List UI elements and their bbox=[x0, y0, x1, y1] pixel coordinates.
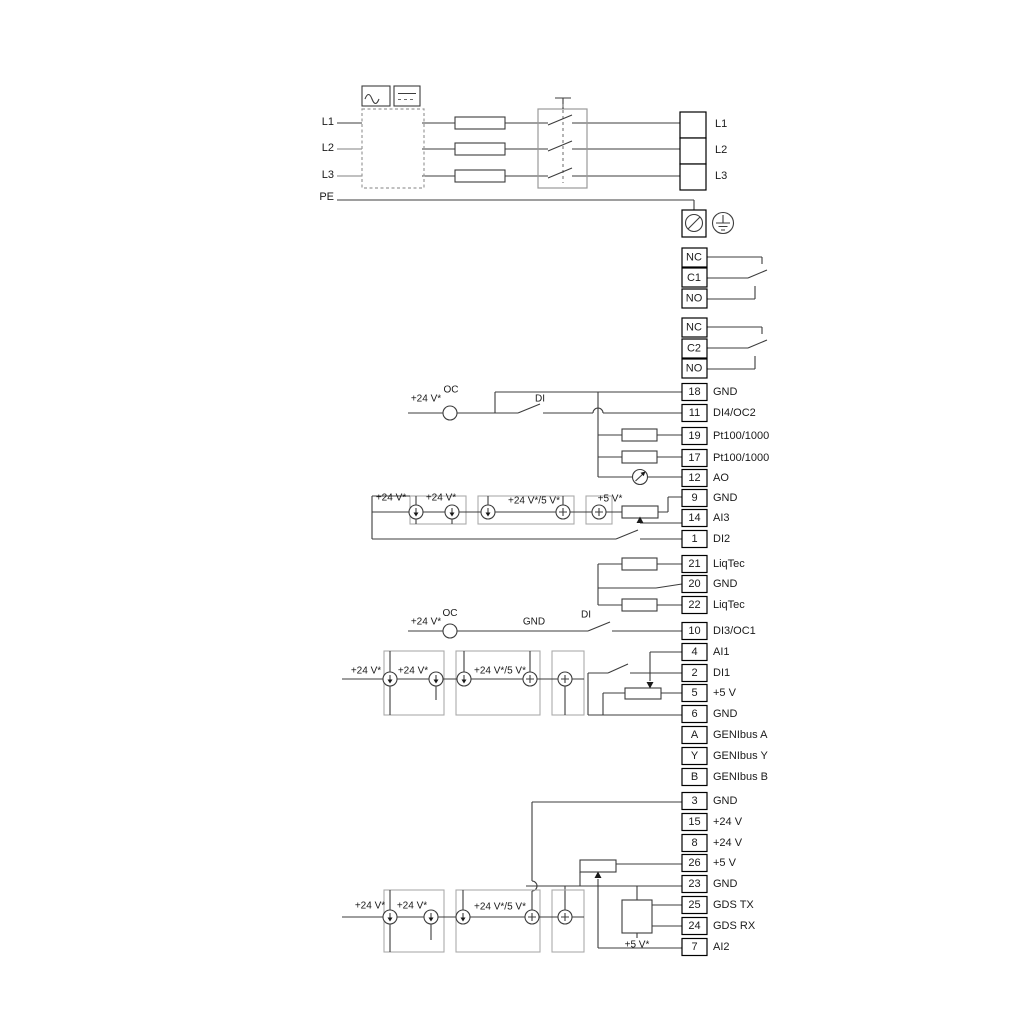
label-l2-right: L2 bbox=[715, 144, 727, 156]
liqtec-section: 21 20 22 LiqTec GND LiqTec bbox=[598, 556, 745, 614]
terminal-l3 bbox=[680, 164, 706, 190]
label-24v-5v: +24 V*/5 V* bbox=[508, 496, 560, 507]
liqtec-sensor-1 bbox=[622, 558, 657, 570]
terminal-l2 bbox=[680, 138, 706, 164]
terminal-label: GND bbox=[713, 578, 738, 590]
terminal-label: AI1 bbox=[713, 646, 730, 658]
label-l3-left: L3 bbox=[322, 169, 334, 181]
label-pe-left: PE bbox=[319, 191, 334, 203]
label-24v-oc1: +24 V* bbox=[411, 617, 441, 628]
label-24v: +24 V* bbox=[376, 493, 406, 504]
terminal-label: +5 V bbox=[713, 687, 737, 699]
power-wires-gray bbox=[337, 149, 362, 176]
relay2-c2: C2 bbox=[687, 343, 701, 355]
terminal-number: 12 bbox=[688, 472, 700, 484]
label-di-oc2: DI bbox=[535, 394, 545, 405]
terminal-number: B bbox=[691, 771, 698, 783]
ai3-potentiometer bbox=[622, 506, 658, 518]
relay-wires bbox=[707, 257, 762, 369]
relay1-c1: C1 bbox=[687, 272, 701, 284]
terminal-number: A bbox=[691, 729, 699, 741]
label-24v-oc2: +24 V* bbox=[411, 394, 441, 405]
relay1-nc: NC bbox=[686, 252, 702, 264]
relay1-no: NO bbox=[686, 293, 703, 305]
switch-blades bbox=[548, 115, 572, 178]
terminal-label: GND bbox=[713, 386, 738, 398]
label-24v: +24 V* bbox=[355, 901, 385, 912]
terminal-label: Pt100/1000 bbox=[713, 452, 769, 464]
terminal-label: GENIbus A bbox=[713, 729, 768, 741]
terminal-label: DI2 bbox=[713, 533, 730, 545]
label-l3-right: L3 bbox=[715, 170, 727, 182]
terminal-label: GENIbus B bbox=[713, 771, 768, 783]
terminal-number: 22 bbox=[688, 599, 700, 611]
wiring-diagram: L1 L2 L3 PE L1 L2 L3 NC C1 NO NC C2 NO +… bbox=[0, 0, 1024, 1024]
liqtec-sensor-2 bbox=[622, 599, 657, 611]
label-24v-5v: +24 V*/5 V* bbox=[474, 666, 526, 677]
dc-symbol-box bbox=[394, 86, 420, 106]
wiring-diagram-page: L1 L2 L3 PE L1 L2 L3 NC C1 NO NC C2 NO +… bbox=[0, 0, 1024, 1024]
terminal-label: +24 V bbox=[713, 816, 743, 828]
label-di-oc1: DI bbox=[581, 610, 591, 621]
terminal-label: AO bbox=[713, 472, 729, 484]
relay-contact-blades bbox=[748, 270, 767, 348]
terminal-label: AI3 bbox=[713, 512, 730, 524]
terminal-l1 bbox=[680, 112, 706, 138]
terminal-label: LiqTec bbox=[713, 599, 745, 611]
terminal-number: 24 bbox=[688, 920, 700, 932]
terminal-label: LiqTec bbox=[713, 558, 745, 570]
power-section: L1 L2 L3 PE L1 L2 L3 bbox=[319, 86, 733, 237]
switch-handle-icon bbox=[555, 98, 571, 109]
terminal-number: 21 bbox=[688, 558, 700, 570]
label-gnd-oc1: GND bbox=[523, 617, 545, 628]
ai2-potentiometer bbox=[580, 860, 616, 872]
terminal-number: 17 bbox=[688, 452, 700, 464]
terminal-number: 11 bbox=[689, 407, 700, 419]
relay2-no: NO bbox=[686, 363, 703, 375]
open-collector-icon bbox=[443, 624, 457, 638]
strip-c-wires bbox=[526, 802, 682, 948]
label-5v-gds: +5 V* bbox=[625, 940, 650, 951]
terminal-label: GND bbox=[713, 795, 738, 807]
source-arrowheads bbox=[414, 513, 491, 517]
terminal-number: 15 bbox=[688, 816, 700, 828]
pt100-resistor-2 bbox=[622, 451, 657, 463]
strip-a-section: +24 V* OC DI +24 V* +24 V* +24 V*/5 V* +… bbox=[372, 384, 769, 548]
terminal-label: DI4/OC2 bbox=[713, 407, 756, 419]
terminal-number: 10 bbox=[688, 625, 700, 637]
terminal-number: 18 bbox=[688, 386, 700, 398]
terminal-number: Y bbox=[691, 750, 699, 762]
terminal-label: GENIbus Y bbox=[713, 750, 768, 762]
di4-switch-blade bbox=[518, 404, 540, 413]
terminal-label: AI2 bbox=[713, 941, 730, 953]
label-24v-5v: +24 V*/5 V* bbox=[474, 902, 526, 913]
di1-switch-blade bbox=[608, 664, 628, 673]
terminal-number: 14 bbox=[688, 512, 700, 524]
terminal-label: Pt100/1000 bbox=[713, 430, 769, 442]
terminal-number: 5 bbox=[691, 687, 697, 699]
emc-filter-box bbox=[362, 109, 424, 188]
terminal-number: 25 bbox=[688, 899, 700, 911]
label-24v: +24 V* bbox=[397, 901, 427, 912]
terminal-label: GDS TX bbox=[713, 899, 754, 911]
strip-c-section: +5 V* +24 V* +24 V* +24 V*/5 V* 3 bbox=[342, 793, 756, 956]
label-l2-left: L2 bbox=[322, 142, 334, 154]
source-arrowheads bbox=[388, 680, 467, 684]
terminal-label: GND bbox=[713, 708, 738, 720]
terminal-number: 26 bbox=[688, 857, 700, 869]
terminal-number: 8 bbox=[691, 837, 697, 849]
relay-blocks: NC C1 NO NC C2 NO bbox=[682, 248, 767, 378]
terminal-number: 23 bbox=[688, 878, 700, 890]
terminal-label: +24 V bbox=[713, 837, 743, 849]
terminal-number: 20 bbox=[688, 578, 700, 590]
ai3-option-group: +24 V* +24 V* +24 V*/5 V* +5 V* bbox=[372, 493, 682, 540]
label-24v: +24 V* bbox=[426, 493, 456, 504]
relay2-nc: NC bbox=[686, 322, 702, 334]
terminal-label: DI1 bbox=[713, 667, 730, 679]
terminal-number: 6 bbox=[691, 708, 697, 720]
terminal-number: 2 bbox=[691, 667, 697, 679]
terminal-number: 9 bbox=[691, 492, 697, 504]
label-24v: +24 V* bbox=[398, 666, 428, 677]
terminal-label: DI3/OC1 bbox=[713, 625, 756, 637]
terminal-label: GDS RX bbox=[713, 920, 756, 932]
pt100-resistor-1 bbox=[622, 429, 657, 441]
terminal-number: 4 bbox=[691, 646, 697, 658]
terminal-label: GND bbox=[713, 878, 738, 890]
di2-switch-blade bbox=[616, 530, 638, 539]
fuse-l3 bbox=[455, 170, 505, 182]
strip-b-section: +24 V* OC GND DI +24 V* +24 V* +24 V*/5 … bbox=[342, 608, 768, 786]
terminal-number: 3 bbox=[691, 795, 697, 807]
ai2-option-group: +24 V* +24 V* +24 V*/5 V* bbox=[342, 890, 584, 952]
terminal-number: 1 bbox=[691, 533, 697, 545]
terminal-label: +5 V bbox=[713, 857, 737, 869]
ai1-option-group: +24 V* +24 V* +24 V*/5 V* bbox=[342, 651, 682, 715]
label-5v: +5 V* bbox=[598, 494, 623, 505]
terminal-number: 19 bbox=[688, 430, 700, 442]
ai1-potentiometer bbox=[625, 688, 661, 699]
open-collector-icon bbox=[443, 406, 457, 420]
label-24v: +24 V* bbox=[351, 666, 381, 677]
fuse-l1 bbox=[455, 117, 505, 129]
terminal-number: 7 bbox=[691, 941, 697, 953]
terminal-label: GND bbox=[713, 492, 738, 504]
fuse-l2 bbox=[455, 143, 505, 155]
label-l1-left: L1 bbox=[322, 116, 334, 128]
di3-switch-blade bbox=[588, 622, 610, 631]
label-oc-oc1: OC bbox=[443, 608, 458, 619]
label-l1-right: L1 bbox=[715, 118, 727, 130]
power-wires bbox=[337, 123, 694, 210]
gds-sensor-box bbox=[622, 900, 652, 933]
label-oc-oc2: OC bbox=[444, 385, 459, 396]
